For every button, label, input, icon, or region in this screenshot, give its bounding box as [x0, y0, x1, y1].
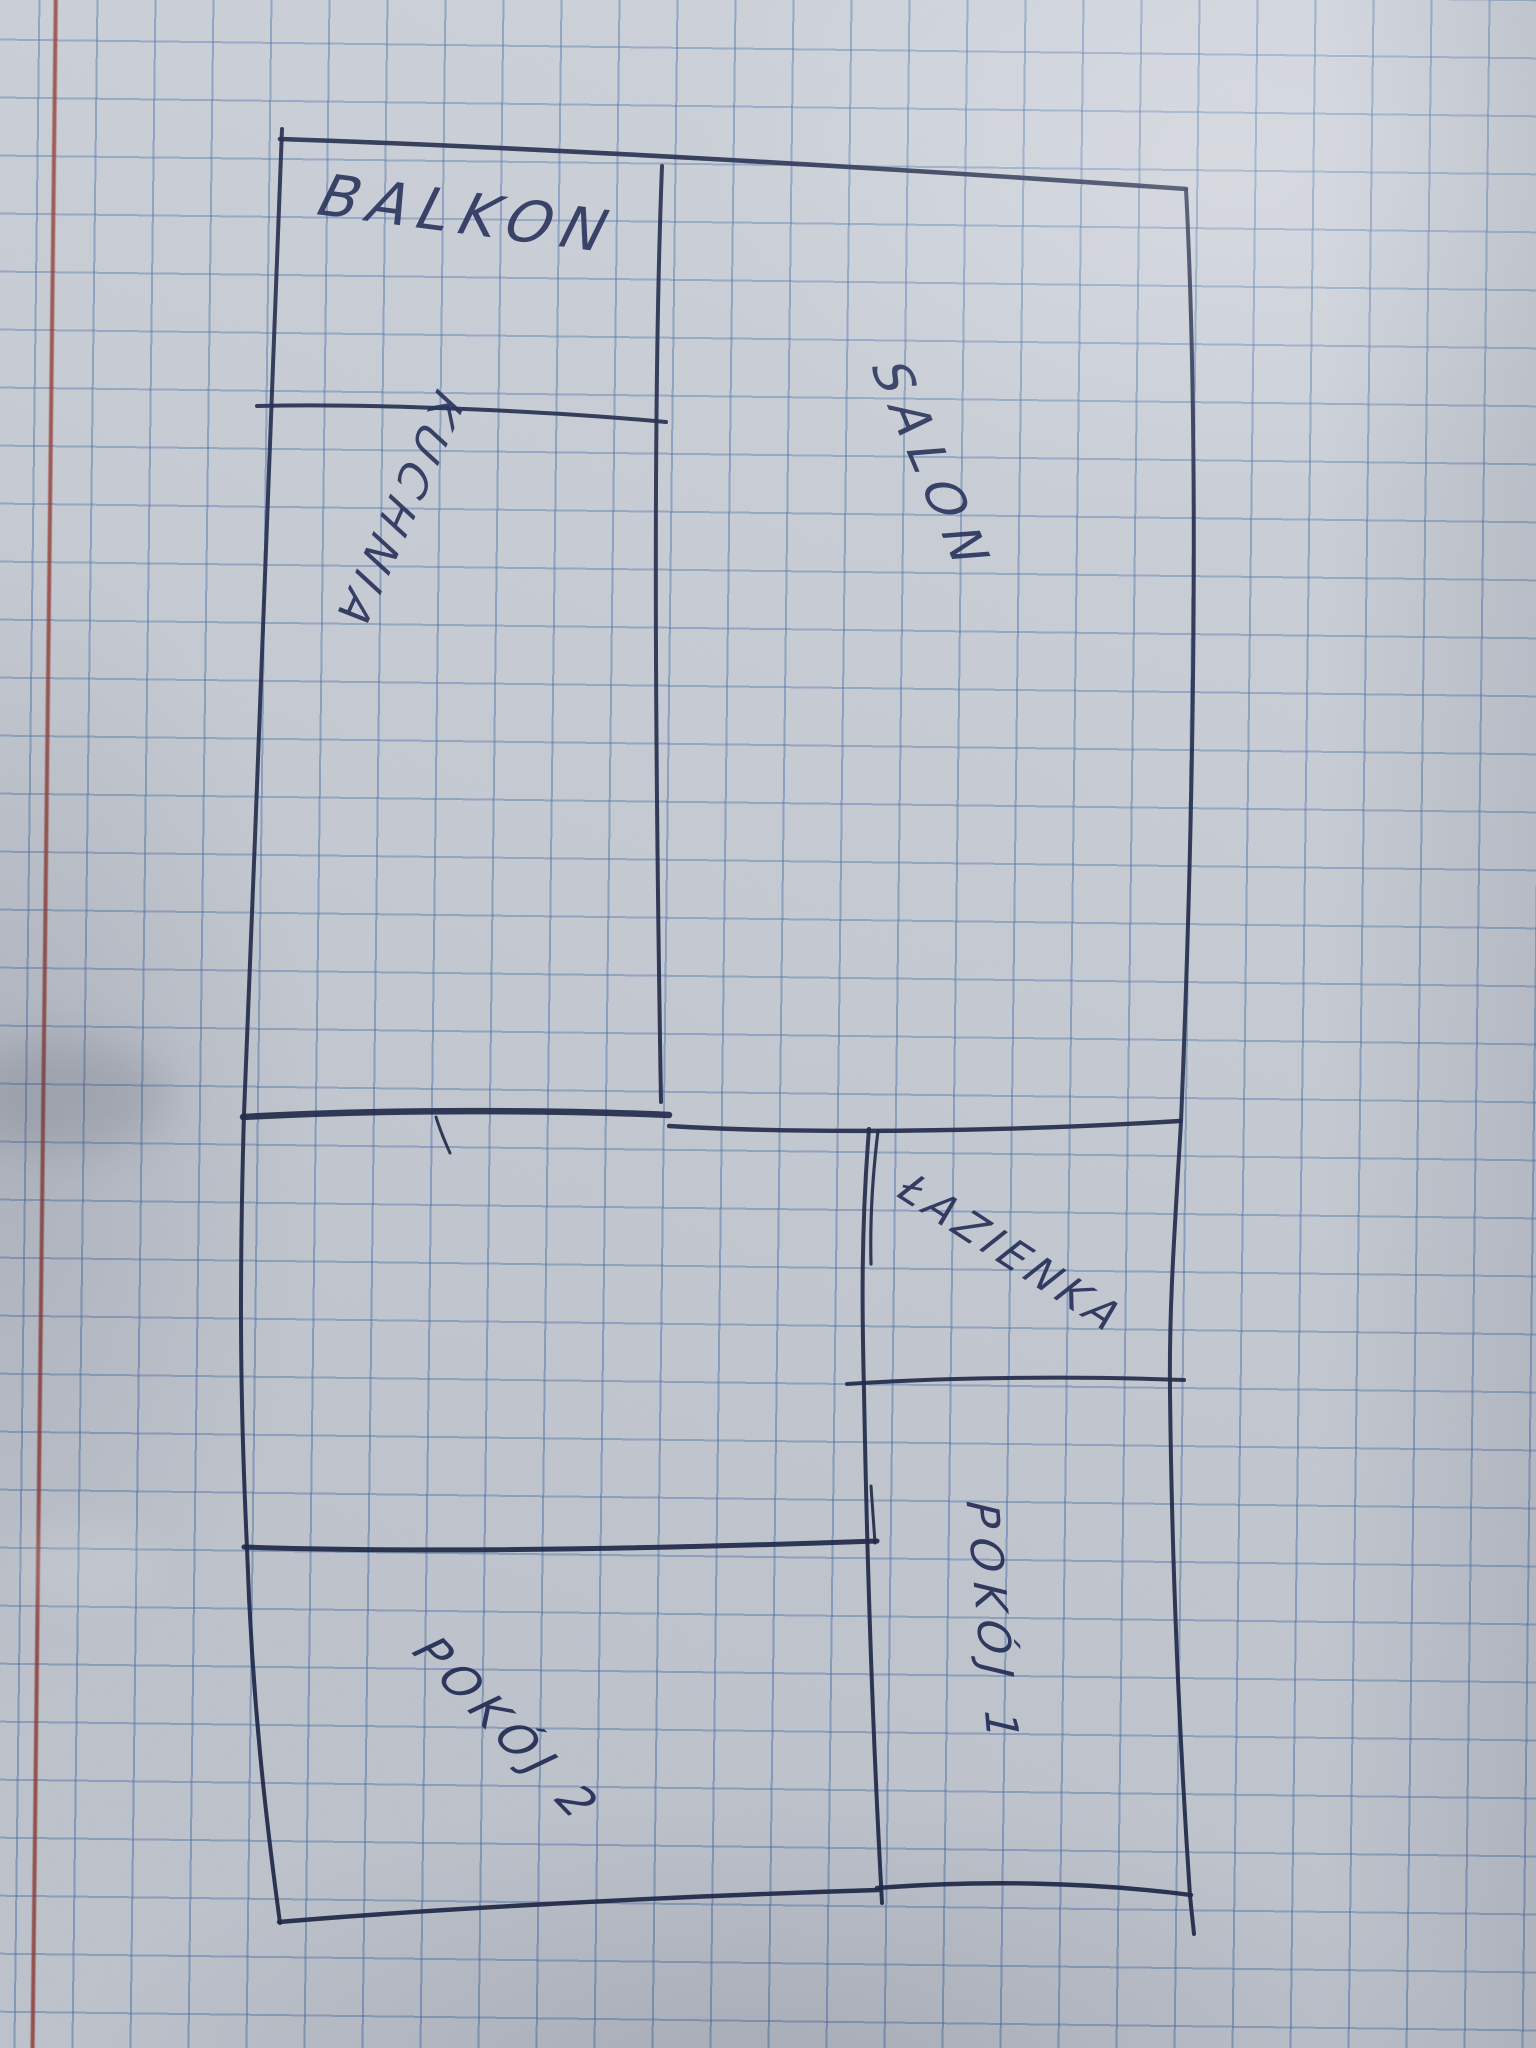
paper-smudge-light	[10, 1520, 160, 1610]
wall-bathroom-left-second-stroke	[871, 1131, 878, 1264]
ink-drawing	[0, 0, 1536, 2048]
wall-middle-right	[669, 1121, 1180, 1131]
wall-room2-junction-stroke	[871, 1486, 875, 1543]
pen-tick-mark	[436, 1117, 450, 1153]
wall-bottom-room2	[279, 1890, 878, 1922]
wall-right	[1170, 189, 1194, 1934]
wall-bathroom-bottom	[847, 1378, 1184, 1384]
floor-plan-photo: BALKON KUCHNIA SALON ŁAZIENKA POKÓJ 1 PO…	[0, 0, 1536, 2048]
wall-middle-left	[243, 1111, 669, 1117]
wall-room2-top	[244, 1541, 877, 1550]
wall-bottom-room1	[877, 1883, 1191, 1895]
wall-kitchen-salon-divider	[656, 166, 662, 1102]
wall-left	[241, 129, 282, 1923]
